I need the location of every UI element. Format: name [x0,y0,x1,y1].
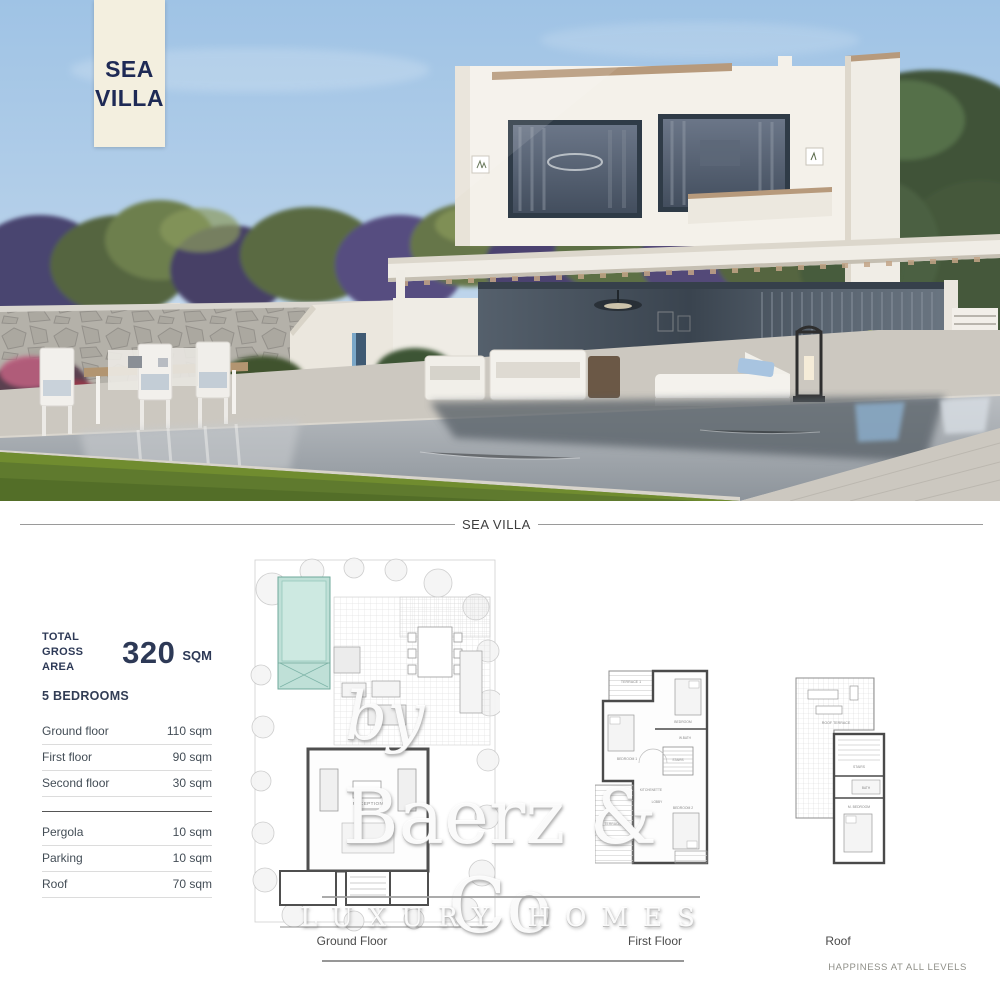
table-row: Parking 10 sqm [42,846,212,872]
divider-label: SEA VILLA [455,517,538,532]
stats-panel: TOTAL GROSS AREA 320 SQM 5 BEDROOMS Grou… [42,630,212,898]
room-label-roof-bath: BATH [862,786,871,790]
room-label-terrace1: TERRACE 1 [621,680,641,684]
row-value: 90 sqm [173,750,212,764]
row-label: Second floor [42,776,109,790]
row-value: 30 sqm [173,776,212,790]
caption-ground-floor: Ground Floor [302,934,402,948]
brochure-page: SEA VILLA SEA VILLA TOTAL GROSS AREA 320… [0,0,1000,1000]
table-row: Roof 70 sqm [42,872,212,898]
room-label-bath: W.BATH [679,736,692,740]
plan-pool [278,577,330,689]
divider-line-left [20,524,455,525]
plan-lower-rooms [280,871,428,905]
ground-floor-plan: RECEPTION [250,555,500,940]
room-label-bedroom2: BEDROOM 2 [673,806,693,810]
badge-line1: SEA [105,55,154,84]
room-label-reception: RECEPTION [353,801,383,806]
divider-line-right [538,524,983,525]
bedrooms-label: 5 BEDROOMS [42,689,212,703]
row-label: Roof [42,877,67,891]
plan-reception: RECEPTION [308,749,428,871]
room-label-stairs: STAIRS [672,758,683,762]
room-label-terrace2: TERRACE 2 [604,822,623,826]
row-value: 10 sqm [173,825,212,839]
room-label-bedroom3: BEDROOM [674,720,692,724]
total-value: 320 [122,635,175,671]
row-label: Parking [42,851,83,865]
table-row: Second floor 30 sqm [42,771,212,797]
total-label-line1: TOTAL [42,630,110,645]
caption-roof: Roof [798,934,878,948]
room-label-lobby: LOBBY [652,800,664,804]
row-label: First floor [42,750,92,764]
planter [334,647,360,673]
table-row: Pergola 10 sqm [42,820,212,846]
sea-villa-badge: SEA VILLA [94,0,165,147]
total-unit: SQM [182,648,212,663]
table-row: First floor 90 sqm [42,745,212,771]
row-value: 10 sqm [173,851,212,865]
row-label: Ground floor [42,724,109,738]
watermark-line-top [322,896,700,898]
terrace1 [609,671,653,701]
roof-plan: ROOF TERRACE STAIRS BATH M. BEDROOM [788,668,898,888]
room-label-kitchenette: KITCHENETTE [640,788,662,792]
badge-line2: VILLA [95,84,164,113]
section-divider: SEA VILLA [0,516,1000,532]
caption-first-floor: First Floor [605,934,705,948]
room-label-m-bedroom: M. BEDROOM [848,805,870,809]
total-label-line2: GROSS AREA [42,645,110,675]
room-label-roof-terrace: ROOF TERRACE [822,721,851,725]
footer-slogan: HAPPINESS AT ALL LEVELS [828,962,967,973]
room-label-bedroom1: BEDROOM 1 [617,757,637,761]
table-section-separator [42,811,212,812]
total-gross-area: TOTAL GROSS AREA 320 SQM [42,630,212,675]
room-label-roof-stairs: STAIRS [853,765,866,769]
first-floor-plan: TERRACE 1 BEDROOM 1 BEDROOM W.BATH ST [595,663,715,880]
table-row: Ground floor 110 sqm [42,719,212,745]
row-label: Pergola [42,825,83,839]
watermark-line-bottom [322,960,684,962]
area-table: Ground floor 110 sqm First floor 90 sqm … [42,719,212,898]
stairs-first: STAIRS [663,747,693,775]
total-label: TOTAL GROSS AREA [42,630,110,675]
row-value: 70 sqm [173,877,212,891]
row-value: 110 sqm [167,724,212,738]
plan-dining [408,627,462,677]
